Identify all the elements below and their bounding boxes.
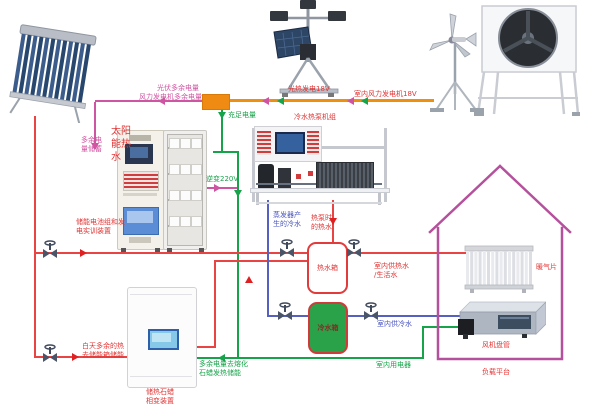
inverter-label: 逆变220V [206, 175, 238, 184]
indoor-cold-supply-label: 室内供冷水 [377, 320, 412, 329]
fan-coil-label: 风机盘管 [482, 341, 510, 350]
pv-generation-label: 光热发电18V [288, 85, 330, 94]
pv-surplus-label: 光伏多余电量 [117, 84, 199, 93]
heat-pump-title: 冷水热泵机组 [294, 113, 336, 122]
heat-pump-bench [250, 124, 390, 206]
heat-pump-hot-label: 热泵时 的热水 [311, 214, 332, 231]
valve-icon [363, 302, 379, 322]
flow-arrow [234, 190, 242, 197]
cold-water-tank: 冷水箱 [308, 302, 348, 354]
paraffin-device-label: 储热石蜡 相变装置 [140, 388, 180, 405]
flow-arrow [245, 276, 253, 283]
indoor-appliances-label: 室内用电器 [376, 361, 411, 370]
flow-arrow [214, 184, 221, 192]
valve-icon [346, 239, 362, 259]
valve-icon [279, 239, 295, 259]
radiator-icon [464, 244, 536, 294]
solar-hot-water-label: 太阳能热水 [111, 125, 137, 164]
evaporator-cold-label: 蒸发器产 生的冷水 [273, 211, 301, 228]
wind-generation-label: 室内风力发电机18V [354, 90, 417, 99]
green-wire-bottom [194, 357, 424, 359]
wind-surplus-label: 风力发电机多余电量 [117, 93, 202, 102]
evaporator-cold-pipe [267, 200, 269, 317]
hot-tank-label: 热水箱 [317, 263, 338, 273]
cold-tank-label: 冷水箱 [318, 323, 339, 333]
radiator-label: 暖气片 [536, 263, 557, 272]
system-diagram: 热水箱 冷水箱 [0, 0, 600, 419]
wind-turbine-icon [420, 2, 580, 120]
indoor-hot-supply-label: 室内供热水 /生活水 [374, 262, 409, 279]
solar-hot-pipe-vertical [34, 116, 36, 358]
flow-arrow [218, 112, 226, 119]
inverter-wire [204, 187, 238, 189]
solar-collector-icon [2, 18, 104, 123]
melt-paraffin-label: 多余电量去熔化 石蜡发热储能 [199, 360, 248, 377]
fan-coil-icon [458, 298, 546, 343]
green-wire-horizontal [213, 151, 239, 153]
sufficient-power-label: 充足电量 [228, 111, 256, 120]
storage-hot-pipe [214, 260, 308, 262]
valve-icon [42, 240, 58, 260]
flow-arrow [80, 249, 87, 257]
surplus-storage-label: 多余电量储蓄 [81, 136, 104, 153]
flow-arrow [72, 353, 79, 361]
power-junction-box [202, 94, 230, 110]
valve-icon [277, 302, 293, 322]
load-platform-label: 负载平台 [482, 368, 510, 377]
paraffin-storage-cabinet [127, 287, 197, 388]
valve-icon [42, 344, 58, 364]
battery-cabinet-label: 储能电池组和发 电实训装置 [76, 218, 130, 235]
daytime-heat-label: 白天多余的热 去储能箱储能 [82, 342, 124, 359]
hot-water-tank: 热水箱 [307, 242, 348, 294]
storage-hot-pipe-vertical [214, 260, 216, 348]
